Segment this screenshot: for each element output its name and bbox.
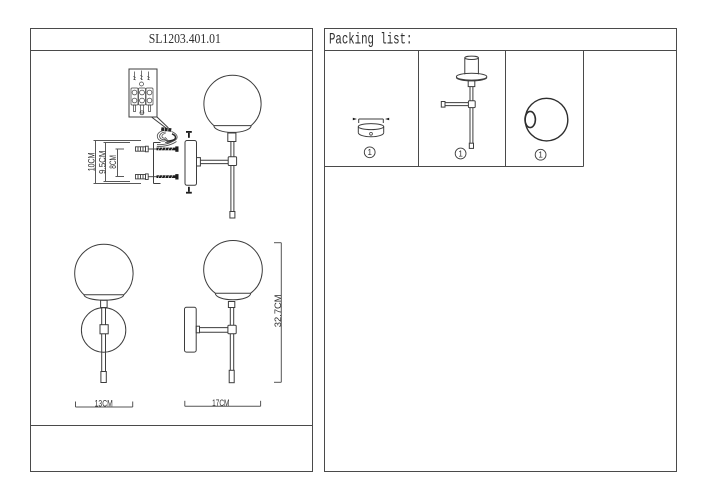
- svg-text:1: 1: [458, 149, 463, 158]
- svg-text:8CM: 8CM: [108, 155, 118, 169]
- svg-text:Packing list:: Packing list:: [329, 31, 412, 48]
- svg-text:SL1203.401.01: SL1203.401.01: [149, 31, 221, 46]
- svg-text:32.7CM: 32.7CM: [273, 294, 283, 327]
- svg-text:1: 1: [367, 148, 372, 157]
- svg-text:10CM: 10CM: [86, 152, 96, 171]
- svg-text:17CM: 17CM: [212, 398, 230, 408]
- svg-text:9.5CM: 9.5CM: [97, 151, 108, 174]
- svg-text:13CM: 13CM: [95, 399, 113, 409]
- svg-text:1: 1: [538, 151, 543, 160]
